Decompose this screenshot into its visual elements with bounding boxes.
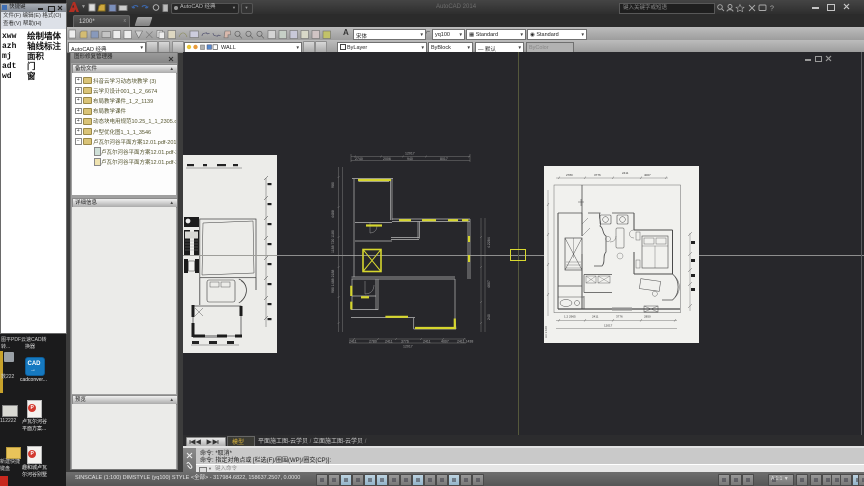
svg-text:12017: 12017 <box>604 324 613 328</box>
svg-text:2411: 2411 <box>349 340 357 344</box>
svg-text:2411.1438: 2411.1438 <box>457 340 473 344</box>
svg-text:240: 240 <box>487 314 491 320</box>
svg-text:4007: 4007 <box>644 173 651 177</box>
svg-text:1188 720 1180: 1188 720 1180 <box>331 230 335 253</box>
svg-text:2740: 2740 <box>355 157 363 161</box>
svg-text:?: ? <box>770 5 774 12</box>
svg-text:980 1488 2188: 980 1488 2188 <box>331 270 335 293</box>
svg-text:8017: 8017 <box>440 157 448 161</box>
svg-text:3776: 3776 <box>616 315 623 319</box>
svg-text:4607: 4607 <box>487 280 491 288</box>
svg-text:12017: 12017 <box>405 152 415 156</box>
svg-text:2411: 2411 <box>423 340 431 344</box>
svg-text:4.2284: 4.2284 <box>487 237 491 248</box>
svg-text:12017: 12017 <box>403 345 413 349</box>
svg-text:2780: 2780 <box>566 173 573 177</box>
svg-text:4007: 4007 <box>441 340 449 344</box>
svg-text:2411: 2411 <box>385 340 393 344</box>
svg-text:2411: 2411 <box>622 171 629 175</box>
svg-text:3776: 3776 <box>594 173 601 177</box>
svg-text:940: 940 <box>407 157 413 161</box>
svg-text:2411: 2411 <box>592 315 599 319</box>
svg-text:3776: 3776 <box>401 340 409 344</box>
svg-text:1.2 2965: 1.2 2965 <box>564 315 576 319</box>
svg-text:980: 980 <box>331 182 335 188</box>
svg-text:2850: 2850 <box>644 315 651 319</box>
svg-text:2006: 2006 <box>383 157 391 161</box>
svg-text:2780: 2780 <box>369 340 377 344</box>
svg-text:A3 1:100: A3 1:100 <box>544 326 548 338</box>
svg-text:4488: 4488 <box>331 210 335 218</box>
